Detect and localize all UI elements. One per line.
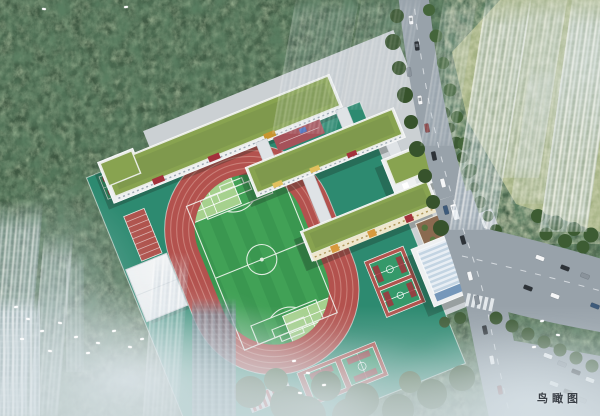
aerial-campus-rendering: 鸟瞰图 [0, 0, 600, 416]
highrise-tower [192, 298, 236, 416]
highrise-tower [66, 252, 84, 372]
bird [48, 350, 52, 352]
bird [26, 318, 30, 320]
highrise-tower [0, 296, 40, 416]
bird [86, 352, 90, 354]
bird [96, 342, 100, 344]
bird [20, 338, 24, 340]
bird [42, 8, 46, 10]
bird [532, 346, 536, 348]
caption-birdseye-label: 鸟瞰图 [537, 390, 582, 406]
bird [306, 372, 310, 374]
bird [124, 6, 128, 8]
bird [322, 384, 326, 386]
bird [556, 334, 560, 336]
bird [128, 346, 132, 348]
bird [40, 330, 44, 332]
bird [298, 392, 302, 394]
